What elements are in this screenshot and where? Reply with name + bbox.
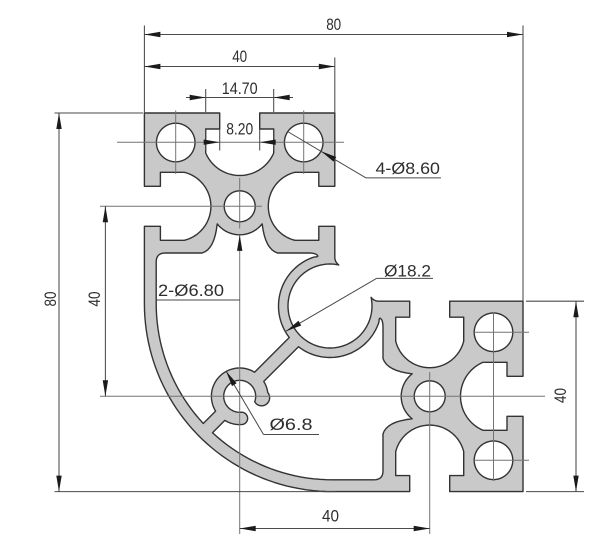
svg-text:4-Ø8.60: 4-Ø8.60 bbox=[376, 159, 441, 178]
svg-text:Ø6.8: Ø6.8 bbox=[270, 415, 313, 434]
svg-text:Ø18.2: Ø18.2 bbox=[384, 262, 431, 281]
svg-text:40: 40 bbox=[232, 47, 247, 66]
svg-text:80: 80 bbox=[326, 15, 341, 34]
svg-text:40: 40 bbox=[322, 507, 339, 526]
svg-text:40: 40 bbox=[551, 388, 570, 403]
svg-text:80: 80 bbox=[41, 292, 60, 307]
svg-text:14.70: 14.70 bbox=[222, 79, 258, 98]
svg-text:8.20: 8.20 bbox=[226, 120, 253, 139]
svg-text:40: 40 bbox=[85, 292, 104, 307]
svg-text:2-Ø6.80: 2-Ø6.80 bbox=[158, 281, 224, 300]
